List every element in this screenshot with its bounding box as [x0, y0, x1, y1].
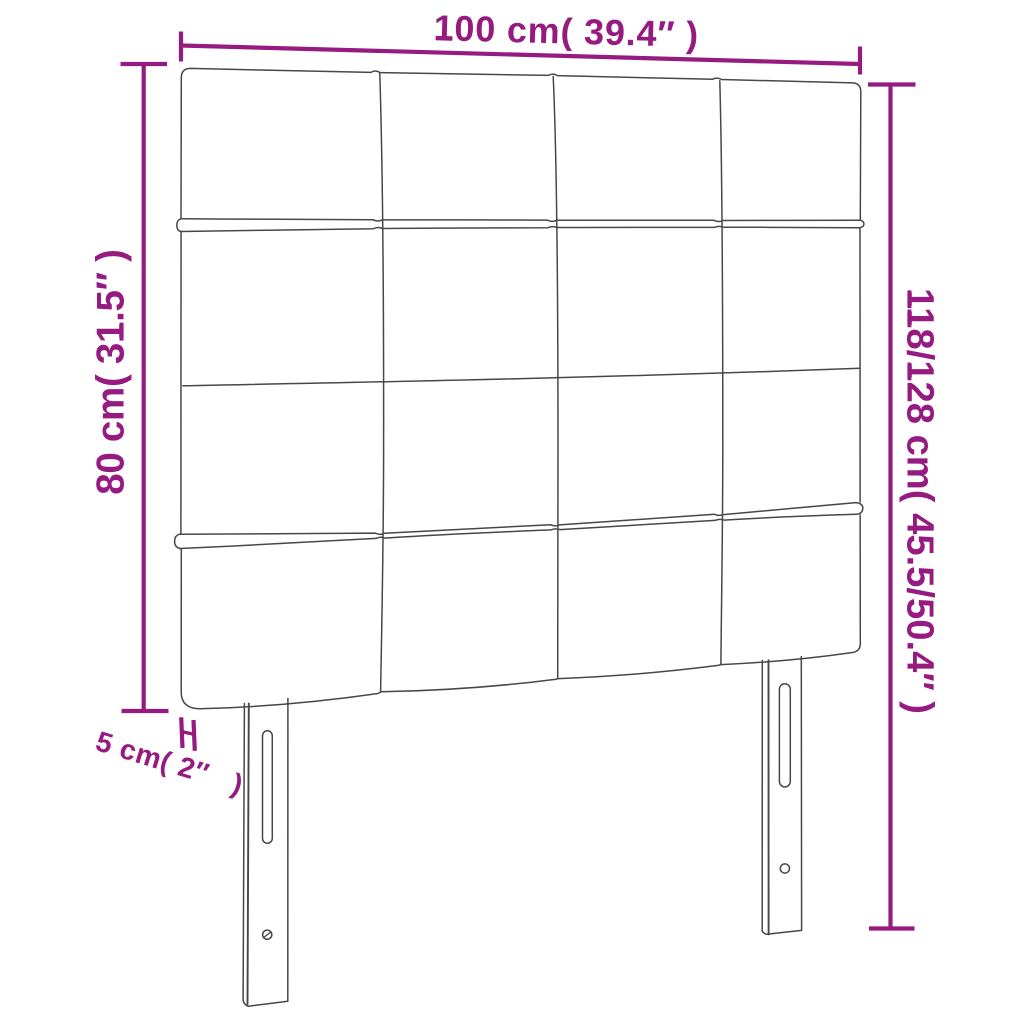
svg-text:100 cm( 39.4″ ): 100 cm( 39.4″ ): [433, 7, 699, 55]
svg-text:118/128 cm( 45.5/50.4″ ): 118/128 cm( 45.5/50.4″ ): [899, 288, 942, 714]
svg-text:80 cm( 31.5″ ): 80 cm( 31.5″ ): [90, 249, 133, 494]
